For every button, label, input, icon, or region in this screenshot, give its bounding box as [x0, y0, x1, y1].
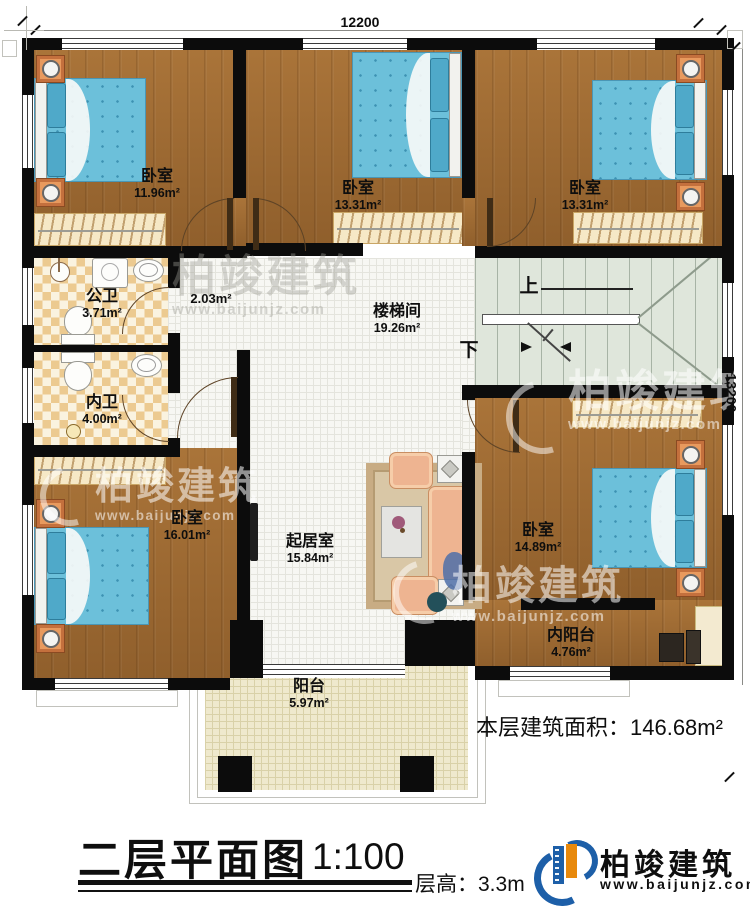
room-name: 内卫 — [82, 394, 122, 412]
window-top-bedroom3 — [537, 38, 655, 50]
room-label-bedroom1: 卧室 11.96m² — [134, 168, 180, 200]
stairs-up-label: 上 — [519, 276, 538, 297]
watermark-url: www.baijunjz.com — [452, 609, 624, 624]
bed-sheet-fold — [406, 53, 430, 177]
stair-cut-arrow-left-icon — [560, 342, 571, 352]
room-area: 19.26m² — [373, 321, 421, 335]
title-text: 二层平面图 — [78, 837, 308, 885]
stair-cut-arrow-right-icon — [521, 342, 532, 352]
shower-hose-icon — [58, 258, 60, 272]
bed-pillow — [675, 520, 694, 563]
bedroom1-nightstand-bottom — [36, 178, 65, 207]
logo-building-orange-icon — [566, 844, 577, 878]
door-gap — [233, 198, 246, 246]
brand-url: www.baijunjz.com — [600, 876, 750, 892]
axis-mark-line — [4, 30, 44, 31]
bedroom3-wardrobe — [573, 212, 703, 244]
bed-pillow — [47, 532, 66, 574]
bedroom3-nightstand-bottom — [676, 182, 705, 211]
coffee-table-flowers-icon — [392, 516, 405, 529]
room-name: 卧室 — [134, 168, 180, 186]
room-area: 13.31m² — [562, 198, 609, 212]
bed-headboard — [35, 79, 47, 181]
coffee-table — [381, 506, 422, 558]
room-area: 3.71m² — [82, 306, 122, 320]
room-name: 楼梯间 — [373, 303, 421, 321]
bed-sheet-fold — [651, 81, 675, 179]
dimension-right-label: 13200 — [723, 374, 739, 413]
room-label-corridor: 2.03m² — [190, 292, 231, 307]
bedroom4-nightstand-bottom — [36, 624, 65, 653]
window-sill-frame-bottom-left — [36, 690, 178, 707]
bed-pillow — [675, 132, 694, 175]
toilet-bowl-icon — [64, 361, 92, 391]
window-right-bedroom5 — [722, 425, 734, 515]
bedroom3-door-leaf — [487, 198, 493, 246]
bedroom2-wardrobe — [333, 212, 463, 244]
brand-logo-icon — [534, 838, 590, 896]
bedroom4-bed — [34, 527, 149, 625]
bed-pillow — [47, 132, 66, 177]
room-label-bedroom5: 卧室 14.89m² — [515, 522, 562, 554]
room-name: 阳台 — [289, 678, 329, 696]
room-name: 公卫 — [82, 288, 122, 306]
title-rule-thick — [78, 880, 412, 885]
sink-bowl-icon — [139, 263, 158, 277]
title-rule-thin — [78, 890, 412, 892]
side-table-top — [437, 455, 463, 483]
scale-value: 1:100 — [312, 836, 405, 877]
watermark-brand: 柏竣建筑 — [452, 566, 624, 606]
total-area-value: 本层建筑面积：146.68m² — [476, 715, 723, 740]
room-area: 14.89m² — [515, 540, 562, 554]
watermark-bottom: 柏竣建筑 www.baijunjz.com — [452, 566, 624, 624]
room-label-public-bath: 公卫 3.71m² — [82, 288, 122, 320]
bedroom4-door-leaf — [231, 377, 237, 437]
dimension-line-right — [742, 45, 743, 685]
window-right-stairs — [722, 283, 734, 357]
armchair-top — [389, 452, 433, 489]
room-label-private-bath: 内卫 4.00m² — [82, 394, 122, 426]
bedroom5-bed — [592, 468, 707, 568]
window-right-bedroom3 — [722, 90, 734, 175]
stairs-down-label: 下 — [459, 340, 478, 361]
room-name: 卧室 — [335, 180, 382, 198]
window-left-bedroom1 — [22, 95, 34, 168]
bed-headboard — [694, 469, 706, 567]
sink-bowl-icon — [137, 358, 156, 372]
room-area: 2.03m² — [190, 292, 231, 307]
bed-pillow — [47, 578, 66, 620]
balcony-sliding-door[interactable] — [263, 664, 405, 678]
room-label-bedroom3: 卧室 13.31m² — [562, 180, 609, 212]
watermark-top: 柏竣建筑 www.baijunjz.com — [172, 255, 360, 317]
inner-balcony-appliance2-icon — [686, 630, 701, 664]
bedroom5-nightstand-top — [676, 440, 705, 469]
room-label-balcony: 阳台 5.97m² — [289, 678, 329, 710]
window-left-private-bath — [22, 368, 34, 423]
window-bottom-inner-balcony — [510, 666, 610, 680]
room-area: 15.84m² — [286, 551, 334, 565]
room-label-inner-balcony: 内阳台 4.76m² — [547, 627, 595, 659]
down-text: 下 — [459, 340, 478, 361]
watermark-url: www.baijunjz.com — [568, 417, 750, 432]
room-name: 卧室 — [164, 510, 211, 528]
dimension-value: 13200 — [723, 374, 739, 413]
bed-pillow — [430, 58, 449, 112]
room-area: 4.00m² — [82, 412, 122, 426]
window-left-public-bath — [22, 268, 34, 325]
bedroom3-nightstand-top — [676, 54, 705, 83]
bed-pillow — [47, 83, 66, 128]
room-label-bedroom4: 卧室 16.01m² — [164, 510, 211, 542]
up-text: 上 — [519, 276, 538, 297]
axis-mark-box — [2, 40, 17, 57]
total-area-text: 本层建筑面积：146.68m² — [476, 710, 723, 742]
axis-mark-line — [26, 6, 27, 50]
washing-machine-door-icon — [101, 263, 119, 281]
balcony-post-right — [400, 756, 434, 792]
bedroom1-door-leaf — [227, 198, 233, 250]
bed-pillow — [675, 85, 694, 128]
dimension-top-label: 12200 — [341, 14, 380, 32]
stair-up-leader-line — [541, 288, 633, 290]
room-area: 16.01m² — [164, 528, 211, 542]
floor-drain-icon — [66, 424, 81, 439]
bed-headboard — [35, 528, 47, 624]
brand-url-text: www.baijunjz.com — [600, 876, 750, 892]
axis-tick-icon — [693, 18, 704, 29]
window-top-bedroom1 — [62, 38, 183, 50]
shower-head-icon — [50, 262, 70, 282]
bedroom2-door-leaf — [253, 198, 259, 250]
door-gap — [462, 198, 475, 246]
bedroom1-wardrobe — [34, 213, 166, 246]
bed-sheet-fold — [66, 528, 90, 624]
floor-plan-page: { "plan": { "dimensions": { "top": "1220… — [0, 0, 750, 907]
bedroom2-bed — [352, 52, 462, 178]
room-label-stairwell: 楼梯间 19.26m² — [373, 303, 421, 335]
room-name: 起居室 — [286, 533, 334, 551]
inner-balcony-appliance-icon — [659, 633, 684, 662]
wall-chunk-living-sw — [230, 620, 263, 678]
room-name: 卧室 — [515, 522, 562, 540]
bed-headboard — [449, 53, 461, 177]
room-name: 内阳台 — [547, 627, 595, 645]
axis-tick-icon — [724, 772, 735, 783]
wall-bed4-top — [22, 445, 180, 457]
room-label-living-room: 起居室 15.84m² — [286, 533, 334, 565]
room-label-bedroom2: 卧室 13.31m² — [335, 180, 382, 212]
room-area: 4.76m² — [547, 645, 595, 659]
bedroom1-nightstand-top — [36, 55, 65, 83]
toilet-tank-icon — [61, 334, 95, 345]
room-area: 13.31m² — [335, 198, 382, 212]
room-area: 11.96m² — [134, 186, 180, 200]
dimension-value: 12200 — [341, 14, 380, 30]
window-bottom-bedroom4 — [55, 678, 168, 690]
floor-height-text: 层高：3.3m — [415, 868, 525, 898]
stair-handrail — [482, 314, 640, 325]
bedroom3-bed — [592, 80, 707, 180]
bed-pillow — [430, 118, 449, 172]
scale-label: 1:100 — [312, 836, 405, 878]
wall-chunk-living-se — [405, 620, 475, 666]
bed-headboard — [694, 81, 706, 179]
window-left-bedroom4 — [22, 505, 34, 595]
bed-sheet-fold — [651, 469, 675, 567]
bedroom5-nightstand-bottom — [676, 568, 705, 597]
watermark-brand: 柏竣建筑 — [95, 468, 259, 506]
wall-bath-divider — [34, 345, 168, 352]
wall-under-bed3 — [475, 246, 734, 258]
window-sill-frame-bottom-right — [498, 680, 630, 697]
balcony-post-left — [218, 756, 252, 792]
page-title: 二层平面图 — [78, 826, 308, 888]
bed-pillow — [675, 473, 694, 516]
window-top-bedroom2 — [303, 38, 407, 50]
bedroom1-bed — [34, 78, 146, 182]
floor-height-value: 层高：3.3m — [415, 873, 525, 896]
room-area: 5.97m² — [289, 696, 329, 710]
bed-sheet-fold — [66, 79, 90, 181]
room-name: 卧室 — [562, 180, 609, 198]
logo-building-blue-icon — [553, 846, 564, 884]
